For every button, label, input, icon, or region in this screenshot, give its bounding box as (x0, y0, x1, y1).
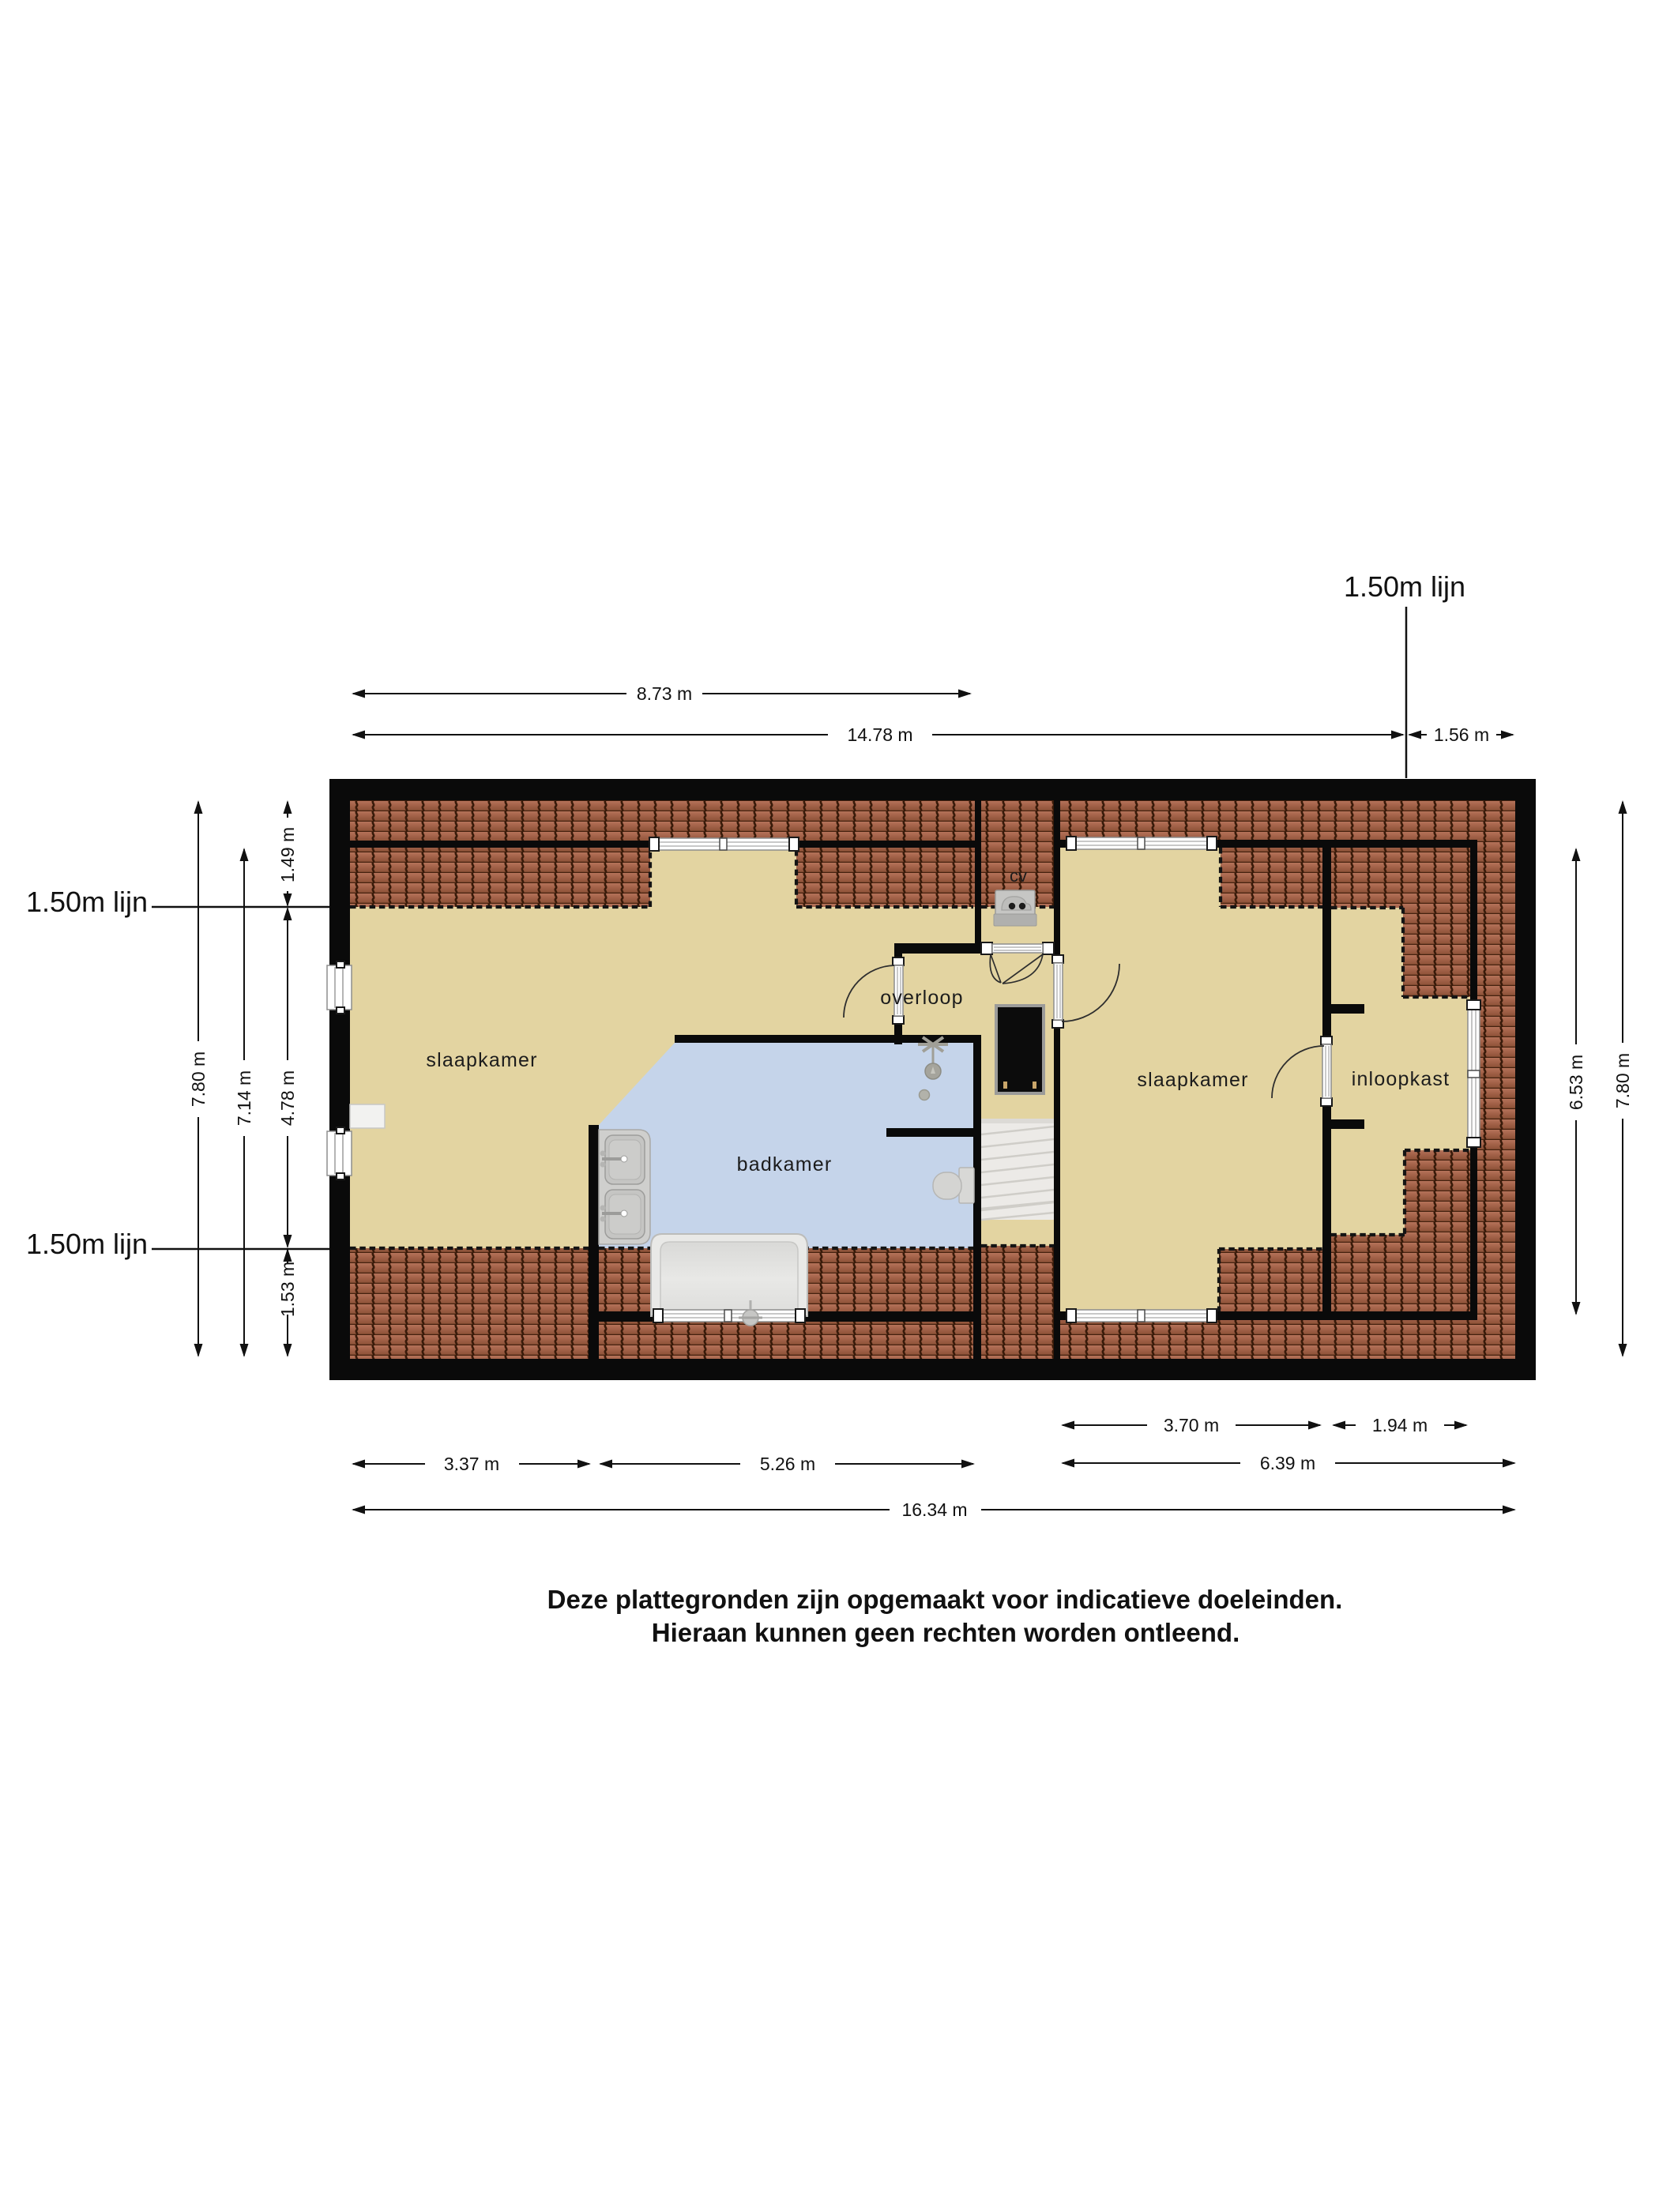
svg-text:1.50m lijn: 1.50m lijn (26, 1228, 148, 1260)
svg-text:16.34 m: 16.34 m (901, 1499, 967, 1520)
svg-text:7.14 m: 7.14 m (234, 1070, 254, 1126)
svg-text:7.80 m: 7.80 m (1612, 1053, 1633, 1108)
svg-text:1.56 m: 1.56 m (1434, 724, 1489, 745)
svg-text:4.78 m: 4.78 m (277, 1070, 298, 1126)
svg-text:inloopkast: inloopkast (1352, 1068, 1450, 1090)
svg-text:1.53 m: 1.53 m (277, 1262, 298, 1317)
svg-text:Deze plattegronden zijn opgema: Deze plattegronden zijn opgemaakt voor i… (547, 1585, 1343, 1614)
svg-text:14.78 m: 14.78 m (847, 724, 912, 745)
svg-text:7.80 m: 7.80 m (188, 1051, 209, 1107)
svg-text:8.73 m: 8.73 m (637, 683, 692, 704)
svg-text:6.39 m: 6.39 m (1260, 1453, 1315, 1473)
svg-text:1.94 m: 1.94 m (1372, 1415, 1428, 1435)
svg-text:3.70 m: 3.70 m (1164, 1415, 1219, 1435)
svg-text:slaapkamer: slaapkamer (1137, 1069, 1248, 1091)
svg-text:1.49 m: 1.49 m (277, 827, 298, 882)
svg-text:6.53 m: 6.53 m (1566, 1055, 1586, 1110)
svg-text:1.50m lijn: 1.50m lijn (26, 886, 148, 918)
svg-text:slaapkamer: slaapkamer (426, 1049, 537, 1071)
svg-text:Hieraan kunnen geen rechten wo: Hieraan kunnen geen rechten worden ontle… (652, 1618, 1240, 1647)
svg-text:1.50m lijn: 1.50m lijn (1344, 570, 1465, 603)
svg-text:3.37 m: 3.37 m (444, 1454, 499, 1474)
svg-text:overloop: overloop (880, 987, 964, 1009)
svg-text:badkamer: badkamer (737, 1153, 833, 1176)
svg-text:cv: cv (1010, 866, 1027, 886)
svg-text:5.26 m: 5.26 m (760, 1454, 815, 1474)
